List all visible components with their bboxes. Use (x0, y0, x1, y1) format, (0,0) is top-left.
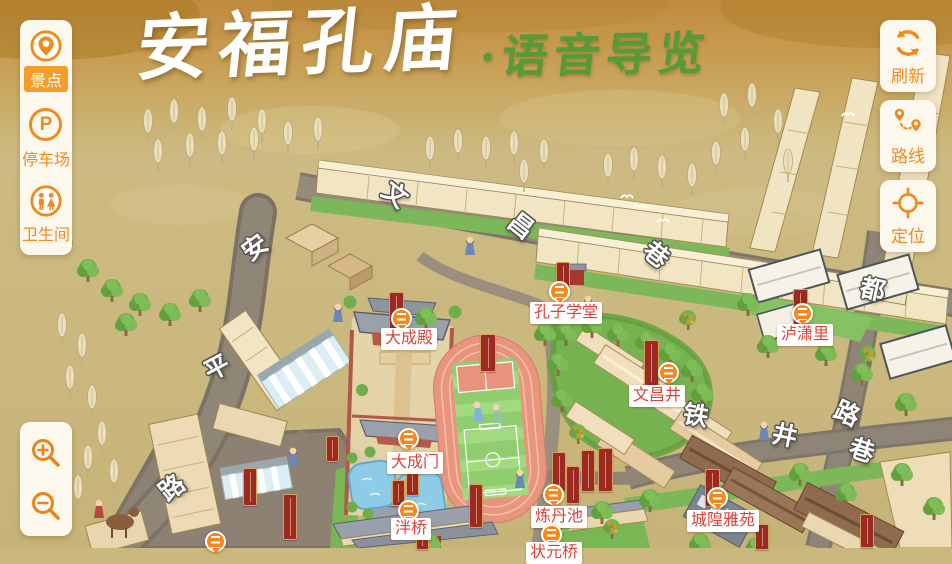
magnifier-minus-icon (28, 488, 64, 524)
sidebar-item-restroom[interactable]: 卫生间 (22, 184, 70, 245)
poi-label[interactable]: 文昌井 (629, 385, 685, 407)
decorative-banner (326, 436, 339, 462)
poi-label[interactable]: 泸潇里 (777, 324, 833, 346)
decorative-banner (581, 450, 595, 492)
audio-spot-marker-icon[interactable] (549, 281, 570, 302)
audio-spot-marker-icon[interactable] (658, 362, 679, 383)
poi-label[interactable]: 状元桥 (526, 542, 582, 564)
parking-icon: P (29, 108, 62, 141)
sidebar-item-label: 卫生间 (22, 221, 70, 245)
poi-liandanchi[interactable]: 炼丹池 (543, 484, 564, 505)
zoom-out-button[interactable] (26, 486, 66, 526)
restroom-icon (29, 184, 63, 218)
poi-zhuangyuanqiao[interactable]: 状元桥 (541, 524, 562, 545)
sidebar-item-scenic[interactable]: 景点 (24, 29, 68, 92)
audio-spot-marker-icon[interactable] (391, 308, 412, 329)
decorative-banner (243, 468, 257, 506)
poi-wenchangjing[interactable]: 文昌井 (658, 362, 679, 383)
audio-spot-marker-icon[interactable] (543, 484, 564, 505)
route-pins-icon (891, 106, 925, 140)
poi-label[interactable]: 大成殿 (381, 328, 437, 350)
route-button[interactable]: 路线 (880, 100, 936, 172)
poi-chenghuangyayuan[interactable]: 城隍雅苑 (707, 487, 728, 508)
sidebar-item-parking[interactable]: P 停车场 (22, 106, 70, 170)
refresh-button[interactable]: 刷新 (880, 20, 936, 92)
poi-label[interactable]: 孔子学堂 (530, 302, 602, 324)
poi-label[interactable]: 城隍雅苑 (687, 510, 759, 532)
sidebar-item-label: 景点 (24, 66, 68, 92)
poi-dachengmen[interactable]: 大成门 (398, 428, 419, 449)
refresh-icon (891, 26, 925, 60)
poi-partial-marker[interactable] (205, 531, 226, 552)
poi-luxiaoli[interactable]: 泸潇里 (792, 303, 813, 324)
sidebar-item-label: 停车场 (22, 146, 70, 170)
poi-dachengdian[interactable]: 大成殿 (391, 308, 412, 329)
zoom-in-button[interactable] (26, 433, 66, 473)
decorative-banner (283, 494, 297, 540)
decorative-banner (860, 514, 874, 548)
locate-label: 定位 (891, 222, 925, 247)
decorative-banner (644, 340, 659, 386)
app-root: { "title": { "main": "安福孔庙", "sub": "·语音… (0, 0, 952, 548)
decorative-banner (598, 448, 613, 492)
poi-label[interactable]: 泮桥 (391, 518, 431, 540)
poi-kongzixuetang[interactable]: 孔子学堂 (549, 281, 570, 302)
route-label: 路线 (891, 142, 925, 167)
scenic-marker-icon (29, 29, 63, 63)
decorative-banner (566, 466, 580, 504)
audio-spot-marker-icon[interactable] (792, 303, 813, 324)
audio-spot-marker-icon[interactable] (205, 531, 226, 552)
poi-label[interactable]: 大成门 (387, 452, 443, 474)
decorative-banner (480, 334, 496, 372)
refresh-label: 刷新 (891, 62, 925, 87)
decorative-banner (469, 484, 483, 528)
audio-spot-marker-icon[interactable] (707, 487, 728, 508)
map-canvas (0, 0, 952, 548)
zoom-controls (20, 422, 72, 536)
audio-spot-marker-icon[interactable] (398, 428, 419, 449)
locate-button[interactable]: 定位 (880, 180, 936, 252)
magnifier-plus-icon (28, 435, 64, 471)
left-toolbar: 景点 P 停车场 卫生间 (20, 20, 72, 255)
poi-panqiao[interactable]: 泮桥 (398, 500, 419, 521)
crosshair-icon (891, 186, 925, 220)
